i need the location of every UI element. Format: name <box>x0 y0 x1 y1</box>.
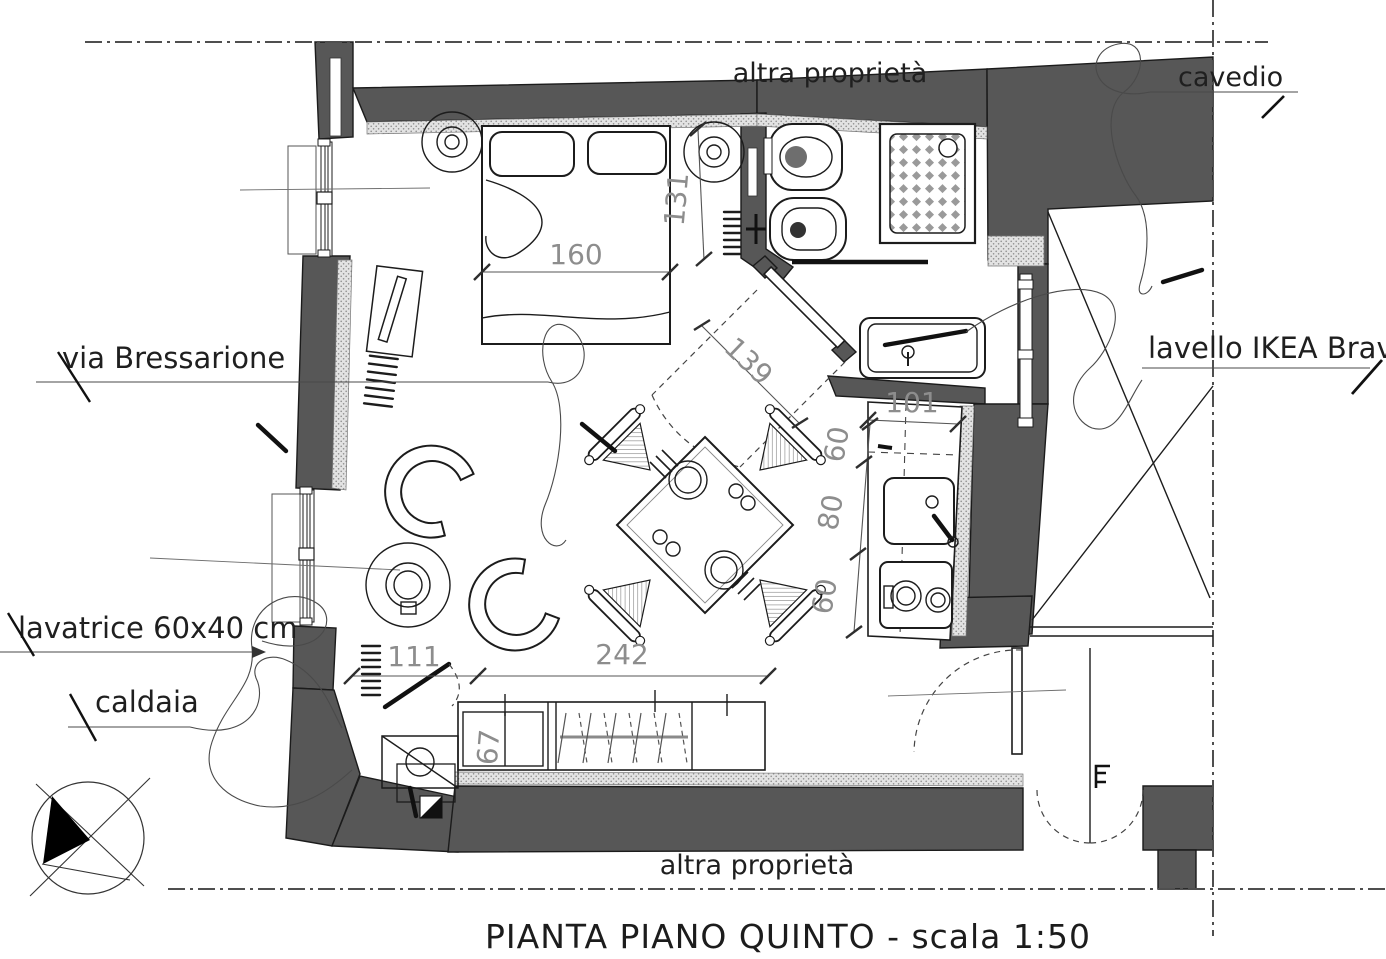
label-street: via Bressarione <box>36 341 548 402</box>
radiator-left <box>360 266 422 409</box>
dim-text: 60 <box>805 576 844 617</box>
floor-plan-page: 160 131 139 101 60 80 60 111 242 67 <box>0 0 1386 959</box>
dim-text: 80 <box>811 492 850 533</box>
armchair <box>370 430 479 546</box>
arrowhead <box>252 646 266 658</box>
label-boiler: caldaia <box>68 685 199 741</box>
washbasin <box>860 318 985 378</box>
label-text: via Bressarione <box>62 341 285 375</box>
dim-text: 139 <box>718 331 779 392</box>
label-text: caldaia <box>95 685 199 719</box>
double-bed <box>482 126 670 344</box>
label-top-property: altra proprietà <box>733 58 928 89</box>
wall-bottom <box>448 786 1023 852</box>
wall-slot <box>330 58 341 136</box>
double-swing-door <box>1037 648 1143 843</box>
dim-text: 67 <box>471 728 507 766</box>
dim-text: 111 <box>387 640 440 673</box>
wall-bottom-right-stub <box>1158 850 1196 889</box>
dim-text: 242 <box>595 638 648 671</box>
radiator-partition <box>724 212 740 254</box>
window-lower <box>150 487 400 625</box>
dim-text: 160 <box>549 238 602 271</box>
label-bottom-property: altra proprietà <box>660 850 855 881</box>
radiator-lower <box>362 646 380 695</box>
pillow <box>490 132 574 176</box>
page-title: PIANTA PIANO QUINTO - scala 1:50 <box>485 917 1091 956</box>
armchair <box>452 549 565 667</box>
toilet <box>764 124 842 190</box>
dim-text: 60 <box>817 424 856 465</box>
shower-drain <box>939 139 957 157</box>
entrance-door <box>888 648 1066 754</box>
window-upper <box>240 139 430 257</box>
wall-slot <box>748 148 757 196</box>
pillow <box>588 132 666 174</box>
cavedio-window <box>1018 274 1033 427</box>
shower-tray <box>880 124 975 243</box>
hob <box>880 562 952 628</box>
label-text: lavatrice 60x40 cm <box>18 611 298 645</box>
label-text: cavedio <box>1178 62 1283 93</box>
label-text: lavello IKEA Braviken <box>1148 331 1386 365</box>
north-arrow <box>30 778 150 896</box>
boiler-flag <box>420 796 442 818</box>
dimension-wardrobe: 111 242 <box>344 638 776 684</box>
dim-text: 131 <box>658 171 696 227</box>
kitchen-sink <box>884 478 958 547</box>
label-washer: lavatrice 60x40 cm <box>0 611 298 658</box>
dimension-bath-door: 139 <box>694 320 808 428</box>
bedside-lamp-right <box>684 122 744 182</box>
floor-plan-drawing: 160 131 139 101 60 80 60 111 242 67 <box>0 0 1386 959</box>
washing-machine <box>382 736 458 788</box>
wall-bottom-right-pier <box>1143 786 1213 850</box>
side-table <box>366 543 450 627</box>
dim-text: 101 <box>885 386 938 419</box>
label-sink: lavello IKEA Braviken <box>1142 331 1386 394</box>
